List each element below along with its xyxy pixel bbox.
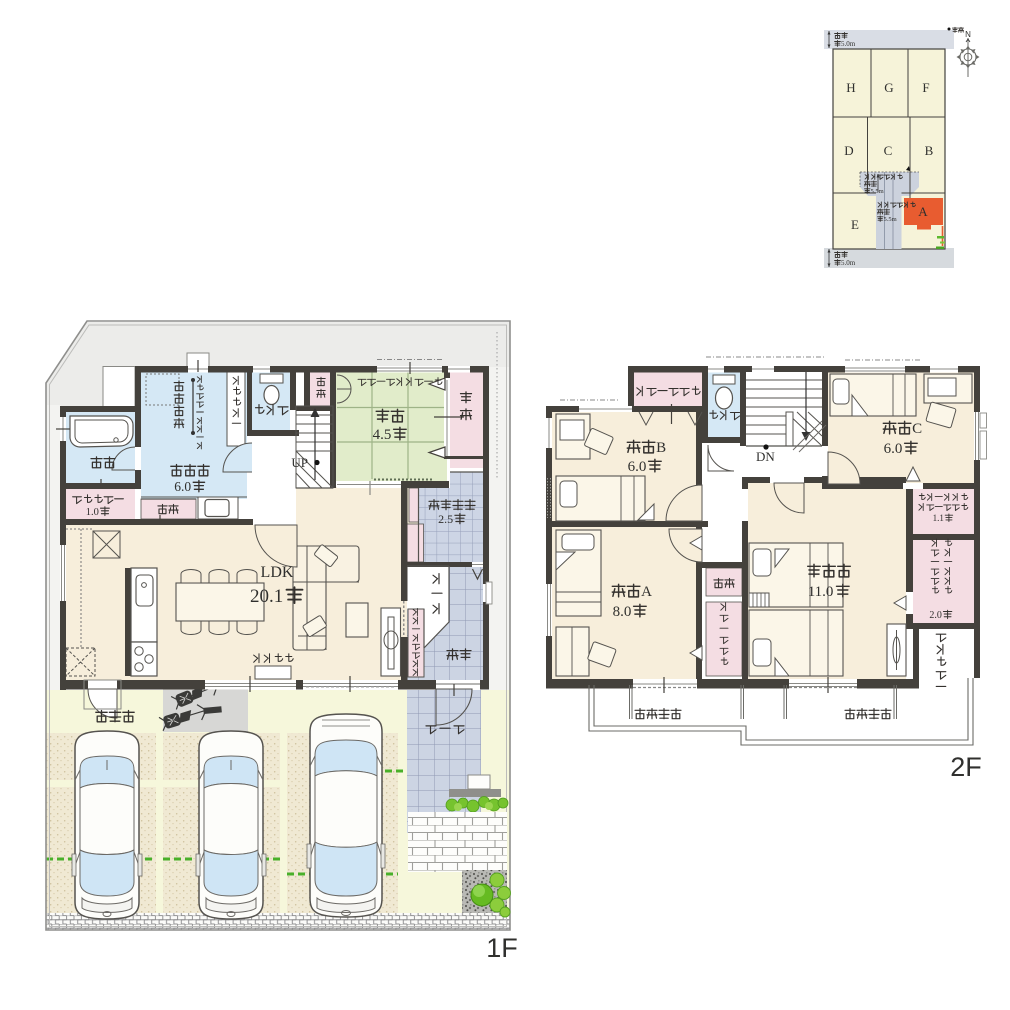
svg-text:2.0: 2.0: [929, 610, 942, 621]
svg-text:E: E: [851, 217, 859, 232]
svg-text:B: B: [656, 440, 666, 456]
svg-text:5.5m: 5.5m: [871, 188, 884, 195]
svg-text:N: N: [965, 30, 971, 39]
svg-text:5.0m: 5.0m: [841, 259, 856, 267]
svg-text:A: A: [641, 584, 652, 600]
svg-text:1.0: 1.0: [86, 507, 99, 518]
svg-text:D: D: [844, 143, 853, 158]
svg-text:2.5: 2.5: [438, 512, 453, 526]
svg-text:C: C: [912, 421, 922, 437]
svg-text:A: A: [918, 204, 928, 219]
svg-text:2F: 2F: [950, 752, 982, 782]
svg-text:11.0: 11.0: [808, 584, 834, 600]
svg-text:4.5: 4.5: [373, 427, 392, 443]
svg-text:H: H: [846, 80, 855, 95]
svg-text:1F: 1F: [486, 933, 518, 963]
svg-text:F: F: [922, 80, 929, 95]
svg-text:DN: DN: [756, 449, 775, 464]
svg-text:6.0: 6.0: [174, 479, 191, 494]
svg-text:G: G: [884, 80, 893, 95]
svg-text:5.5m: 5.5m: [884, 216, 897, 223]
svg-text:8.0: 8.0: [613, 604, 632, 620]
svg-text:6.0: 6.0: [628, 459, 647, 475]
svg-text:B: B: [925, 143, 934, 158]
svg-text:UP: UP: [291, 455, 308, 470]
svg-text:LDK: LDK: [261, 564, 294, 581]
svg-text:20.1: 20.1: [250, 586, 283, 607]
svg-text:C: C: [884, 143, 893, 158]
svg-text:5.0m: 5.0m: [841, 40, 856, 48]
svg-text:1.1: 1.1: [933, 513, 944, 523]
svg-text:6.0: 6.0: [884, 441, 903, 457]
